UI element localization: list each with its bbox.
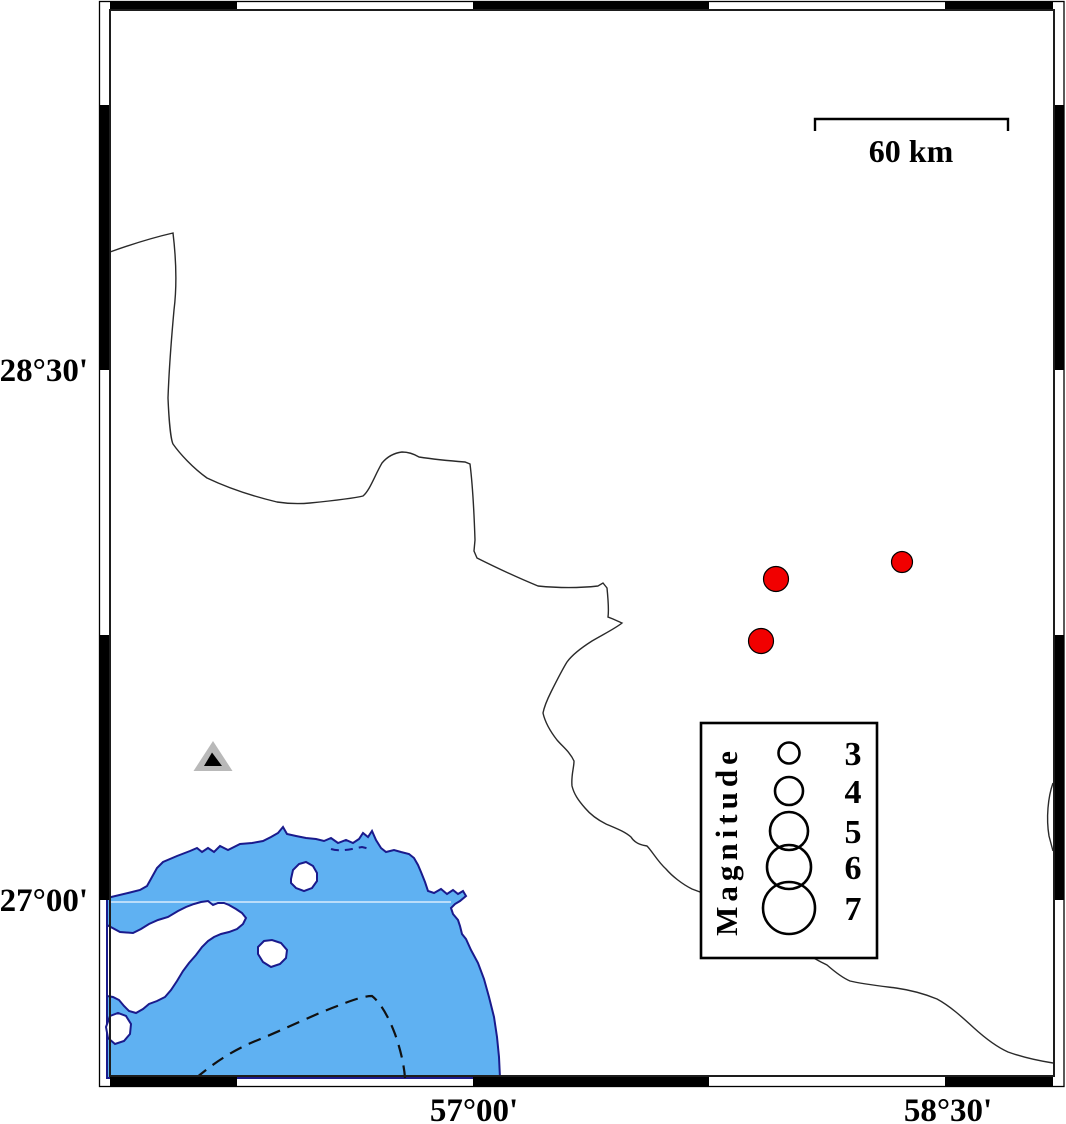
frame-segment xyxy=(110,1076,237,1086)
scale-bar-bracket xyxy=(815,119,1008,131)
scale-bar-label: 60 km xyxy=(869,133,954,169)
frame-segment xyxy=(945,2,1053,11)
legend-title: Magnitude xyxy=(709,746,744,936)
earthquake-marker xyxy=(892,552,913,573)
legend-value-m7: 7 xyxy=(845,891,862,928)
frame-segment xyxy=(1054,105,1064,370)
seismicity-map: 60 km Magnitude 3 4 5 6 7 xyxy=(0,0,1066,1124)
frame-segment xyxy=(473,1076,709,1086)
frame-segment xyxy=(100,105,111,370)
lon-tick-label: 58°30' xyxy=(904,1093,992,1124)
right-edge-coast-arc xyxy=(1048,783,1053,851)
magnitude-legend: Magnitude 3 4 5 6 7 xyxy=(701,723,877,958)
frame-segment xyxy=(473,2,709,11)
lat-tick-label: 27°00' xyxy=(0,883,88,919)
earthquake-markers xyxy=(749,552,913,654)
frame-segment xyxy=(110,2,237,11)
map-canvas: 60 km Magnitude 3 4 5 6 7 xyxy=(0,0,1066,1124)
scale-bar: 60 km xyxy=(815,119,1008,169)
frame-segment xyxy=(100,635,111,900)
lat-tick-label: 28°30' xyxy=(0,353,88,389)
legend-value-m4: 4 xyxy=(845,774,862,811)
station-marker xyxy=(194,741,233,771)
earthquake-marker xyxy=(749,629,774,654)
legend-value-m6: 6 xyxy=(845,850,862,887)
legend-value-m3: 3 xyxy=(845,736,862,773)
frame-segment xyxy=(1054,635,1064,900)
earthquake-marker xyxy=(764,567,789,592)
legend-value-m5: 5 xyxy=(845,814,862,851)
frame-segment xyxy=(945,1076,1053,1086)
lon-tick-label: 57°00' xyxy=(430,1093,518,1124)
